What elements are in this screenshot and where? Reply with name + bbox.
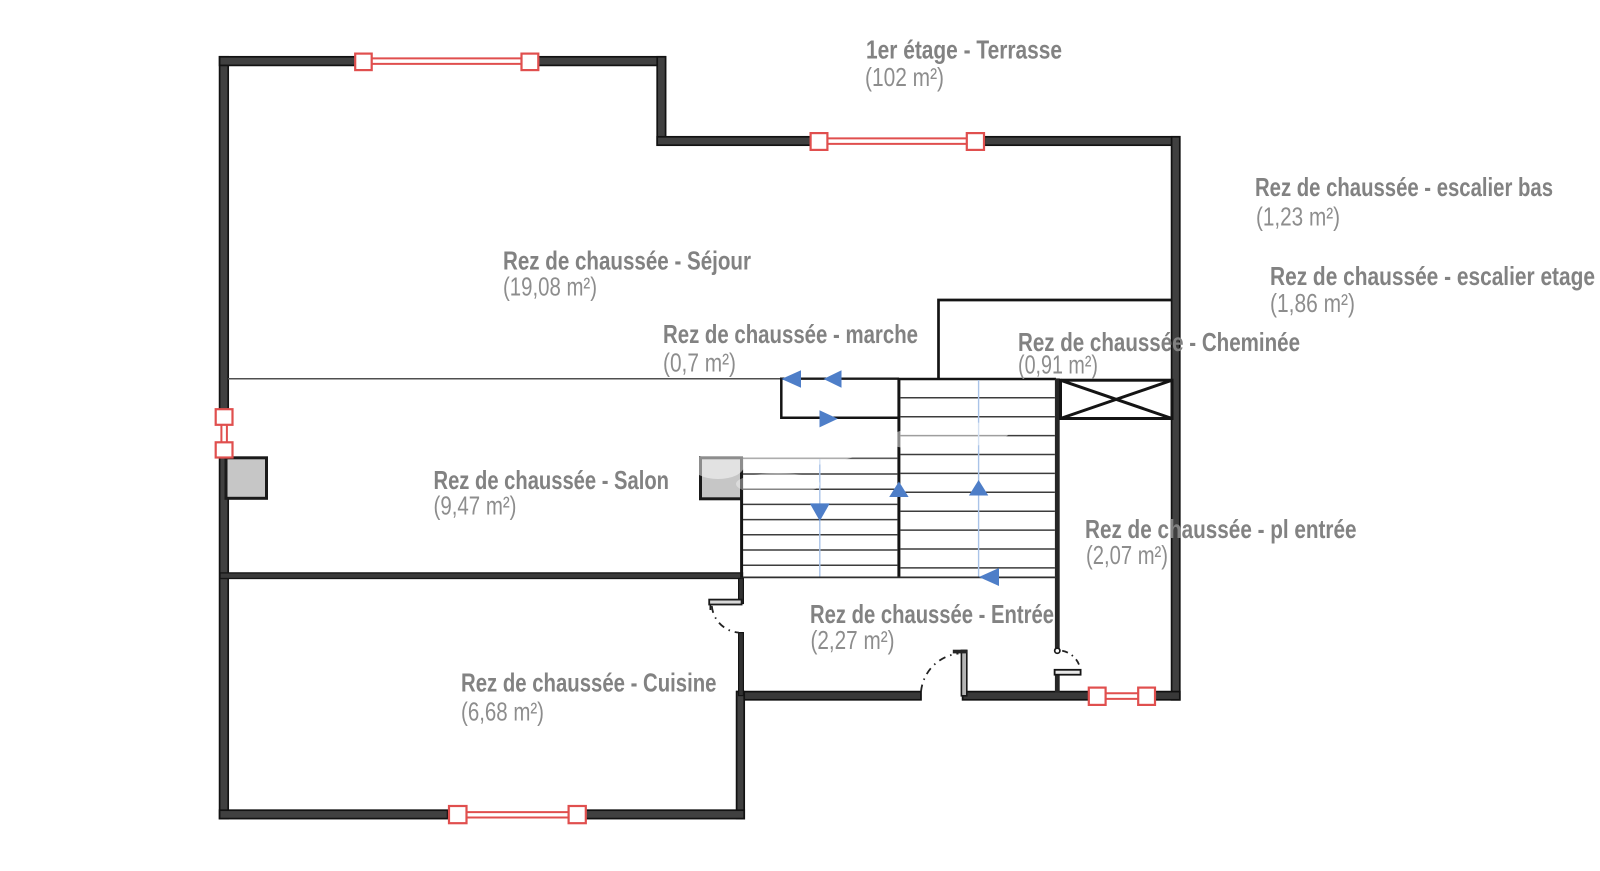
svg-text:(0,91 m²): (0,91 m²): [1018, 349, 1098, 379]
svg-text:Rez de chaussée - Cuisine: Rez de chaussée - Cuisine: [461, 668, 717, 698]
svg-text:Rez de chaussée - escalier bas: Rez de chaussée - escalier bas: [1255, 172, 1553, 202]
svg-text:(2,07 m²): (2,07 m²): [1086, 540, 1168, 570]
svg-text:Rez de chaussée - marche: Rez de chaussée - marche: [663, 319, 918, 349]
svg-text:Rez de chaussée - escalier eta: Rez de chaussée - escalier etage: [1270, 261, 1595, 291]
svg-text:(2,27 m²): (2,27 m²): [811, 625, 895, 655]
svg-text:(9,47 m²): (9,47 m²): [434, 490, 517, 520]
svg-text:(19,08 m²): (19,08 m²): [503, 272, 597, 302]
svg-text:(0,7 m²): (0,7 m²): [663, 347, 736, 377]
svg-text:(102 m²): (102 m²): [865, 62, 944, 92]
svg-text:(1,23 m²): (1,23 m²): [1256, 201, 1340, 231]
svg-text:(6,68 m²): (6,68 m²): [461, 696, 544, 726]
svg-text:1er étage - Terrasse: 1er étage - Terrasse: [866, 35, 1062, 65]
svg-text:(1,86 m²): (1,86 m²): [1270, 288, 1355, 318]
